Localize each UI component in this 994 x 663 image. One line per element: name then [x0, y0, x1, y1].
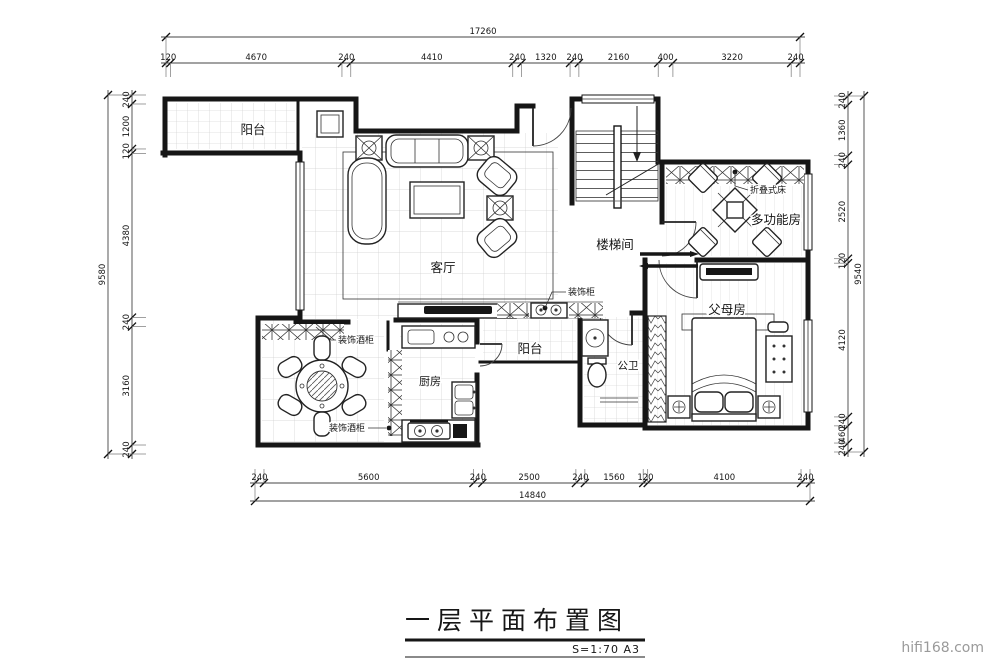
dim-segment-label: 240 — [572, 473, 588, 483]
dim-segment-label: 240 — [338, 53, 354, 63]
dim-segment-label: 240 — [566, 53, 582, 63]
dim-segment-label: 240 — [470, 473, 486, 483]
dim-segment-label: 240 — [122, 91, 132, 107]
tv — [424, 306, 492, 314]
dim-segment-label: 120 — [160, 53, 176, 63]
dim-segment-label: 4670 — [245, 53, 267, 63]
room-label-balcony-top: 阳台 — [240, 122, 265, 137]
kitchen-counter-top — [402, 326, 475, 348]
floor-plan-sheet: 阳台 客厅 楼梯间 多功能房 父母房 公卫 厨房 阳台 装饰酒柜 装饰酒柜 装饰… — [0, 0, 994, 663]
dim-segment-label: 4380 — [122, 225, 132, 247]
dim-segment-label: 240 — [838, 92, 848, 108]
room-label-living: 客厅 — [430, 260, 455, 275]
sofa — [386, 135, 468, 167]
plant-stand-right — [468, 136, 494, 160]
dim-segment-label: 1320 — [535, 53, 557, 63]
dim-segment-label: 240 — [122, 441, 132, 457]
deco-cabinet-x1 — [497, 303, 529, 318]
dim-segment-label: 2160 — [608, 53, 630, 63]
parents-tv-cabinet — [700, 264, 758, 280]
anno-wine-cabinet-lower: 装饰酒柜 — [329, 422, 365, 434]
chaise-lounge — [348, 158, 386, 244]
dim-segment-label: 240 — [838, 152, 848, 168]
dim-segment-label: 5600 — [358, 473, 380, 483]
sliding-door — [639, 251, 699, 269]
drawing-scale: S=1:70 A3 — [572, 643, 640, 656]
toilet — [588, 358, 606, 387]
wine-cabinet-lower-leader-dot — [387, 426, 392, 431]
window-living-west — [296, 162, 304, 310]
dim-segment-label: 1560 — [603, 473, 625, 483]
dim-segment-label: 2520 — [838, 201, 848, 223]
dim-segment-label: 2500 — [518, 473, 540, 483]
room-label-bath: 公卫 — [618, 360, 639, 372]
bath-vanity — [582, 320, 608, 356]
kitchen-stove — [402, 420, 475, 442]
room-label-parents: 父母房 — [708, 302, 746, 317]
dim-segment-label: 240 — [122, 314, 132, 330]
deco-cabinet-circles — [531, 303, 567, 318]
nightstand-left — [668, 396, 690, 418]
dining-table — [296, 360, 348, 412]
dim-segment-label: 1360 — [838, 120, 848, 142]
plant-stand-mid — [487, 196, 513, 220]
room-label-multi: 多功能房 — [751, 212, 801, 227]
anno-wine-cabinet-upper: 装饰酒柜 — [338, 334, 374, 346]
dim-total-label: 17260 — [469, 27, 496, 37]
anno-folding-bed: 折叠式床 — [750, 184, 786, 196]
dim-segment-label: 240 — [787, 53, 803, 63]
dim-total-label: 14840 — [519, 491, 546, 501]
coffee-table — [410, 182, 464, 218]
dim-total-label: 9580 — [98, 264, 108, 286]
dim-segment-label: 120 — [637, 473, 653, 483]
wine-cabinet-upper — [262, 324, 344, 340]
dim-segment-label: 120 — [122, 143, 132, 159]
dim-segment-label: 1200 — [122, 116, 132, 138]
stair-stringer — [614, 126, 621, 208]
dim-segment-label: 4100 — [714, 473, 736, 483]
dim-segment-label: 240 — [838, 439, 848, 455]
window-multi-east — [804, 174, 812, 250]
wine-cabinet-lower — [388, 350, 402, 436]
balcony-top-floor — [167, 103, 295, 149]
drawing-title: 一层平面布置图 — [405, 606, 629, 635]
kitchen-sink — [452, 382, 476, 418]
dim-total-label: 9540 — [854, 263, 864, 285]
anno-deco-cabinet: 装饰柜 — [568, 286, 595, 298]
dim-segment-label: 3220 — [721, 53, 743, 63]
dim-segment-label: 3160 — [122, 375, 132, 397]
dim-segment-label: 4120 — [838, 329, 848, 351]
floor-plan-svg: 阳台 客厅 楼梯间 多功能房 父母房 公卫 厨房 阳台 装饰酒柜 装饰酒柜 装饰… — [0, 0, 994, 663]
window-stair-north — [582, 95, 654, 103]
nightstand-right — [758, 396, 780, 418]
deco-cabinet-x2 — [569, 303, 603, 318]
dim-segment-label: 240 — [797, 473, 813, 483]
plant-stand-left — [356, 136, 382, 160]
room-label-balcony-mid: 阳台 — [517, 341, 542, 356]
room-label-stairwell: 楼梯间 — [596, 237, 634, 252]
room-label-kitchen: 厨房 — [419, 375, 441, 388]
dim-segment-label: 240 — [251, 473, 267, 483]
title-block: 一层平面布置图 S=1:70 A3 hifi168.com — [405, 606, 984, 657]
wardrobe — [648, 316, 666, 422]
dim-segment-label: 4410 — [421, 53, 443, 63]
dim-segment-label: 400 — [657, 53, 673, 63]
dim-segment-label: 240 — [509, 53, 525, 63]
watermark: hifi168.com — [901, 640, 984, 656]
window-parents-east — [804, 320, 812, 412]
staircase — [576, 106, 660, 208]
dim-segment-label: 120 — [838, 253, 848, 269]
planter-box — [317, 111, 343, 137]
